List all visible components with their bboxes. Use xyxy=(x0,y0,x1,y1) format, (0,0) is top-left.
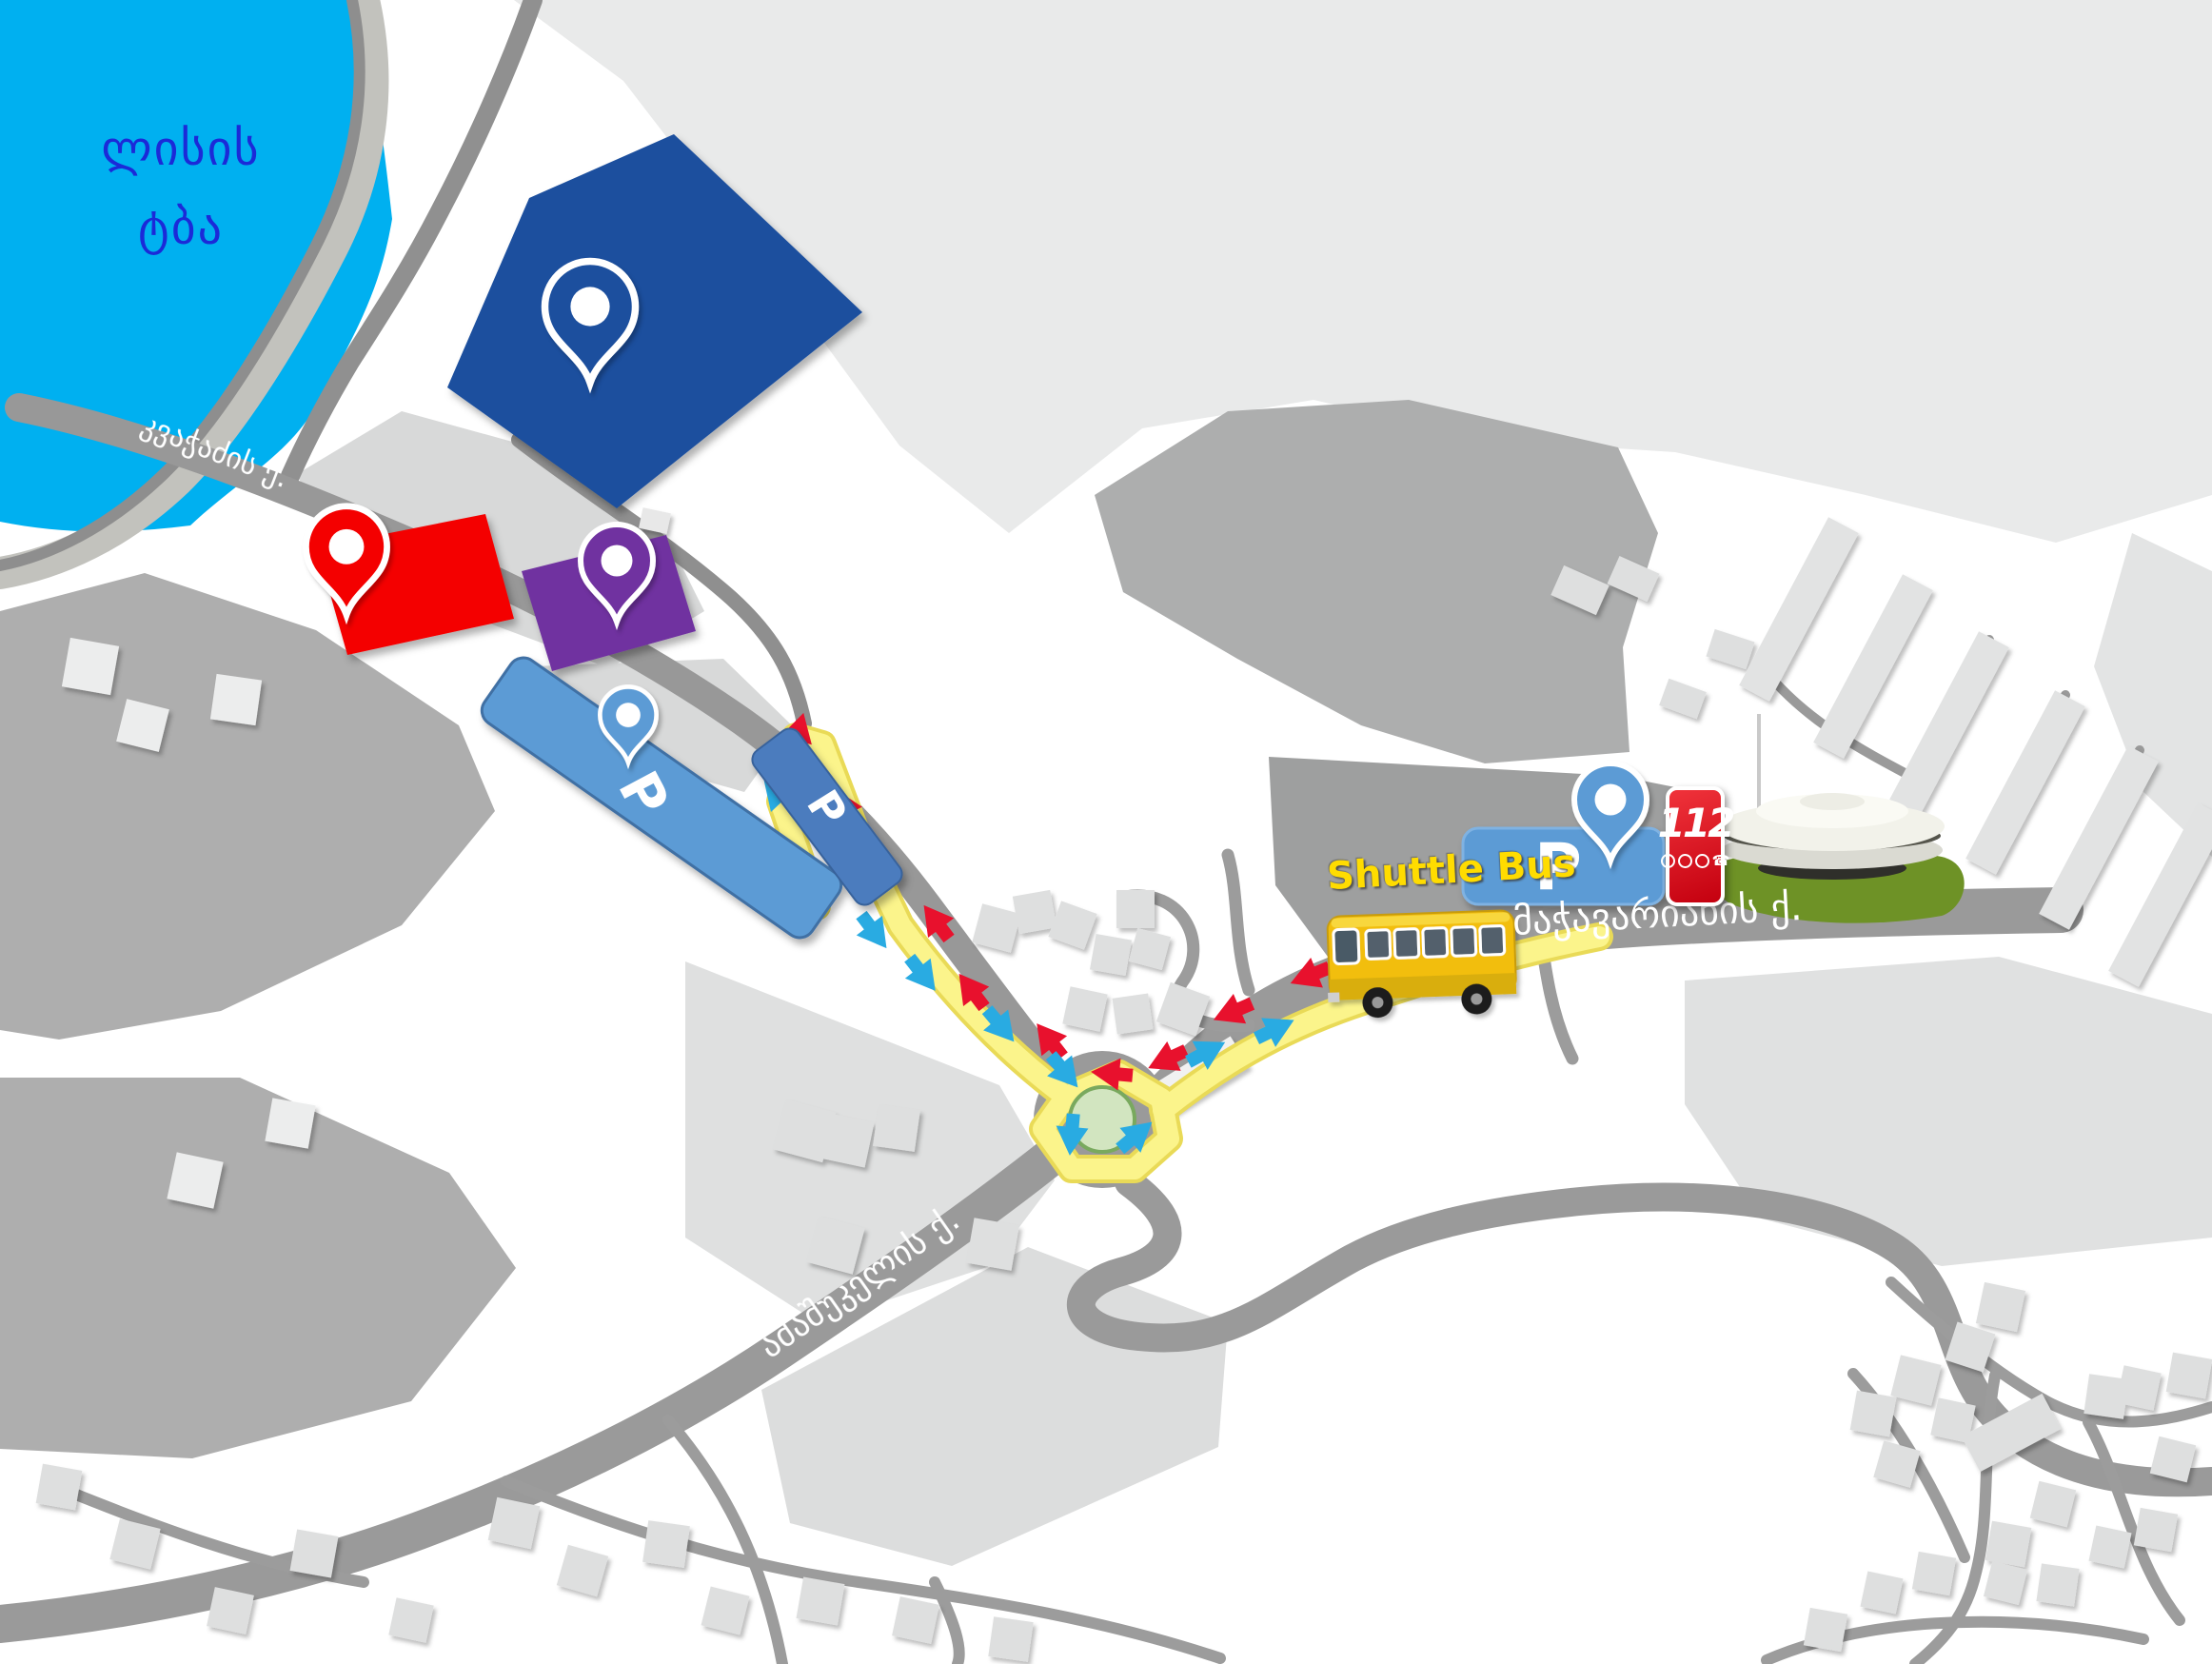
emergency-112-number: 112 xyxy=(1658,800,1733,846)
antenna xyxy=(1757,714,1761,813)
phone-icon: ☎ xyxy=(1712,856,1730,866)
map-graphics xyxy=(0,0,2212,1664)
lake-label: ლისის ტბა xyxy=(52,109,309,267)
medical-icon xyxy=(1678,854,1692,868)
police-icon xyxy=(1695,854,1709,868)
bus-windows xyxy=(1366,925,1505,959)
emergency-112-icons: ☎ xyxy=(1661,854,1730,868)
lake-label-line1: ლისის xyxy=(101,121,260,176)
bus-windshield xyxy=(1333,929,1359,964)
map: ლისის ტბა არაოფიციალური ნაწილი ოფიციალურ… xyxy=(0,0,2212,1664)
lake-label-line2: ტბა xyxy=(138,200,224,255)
emergency-112-sign: 112 ☎ xyxy=(1666,786,1725,906)
fire-icon xyxy=(1661,854,1675,868)
